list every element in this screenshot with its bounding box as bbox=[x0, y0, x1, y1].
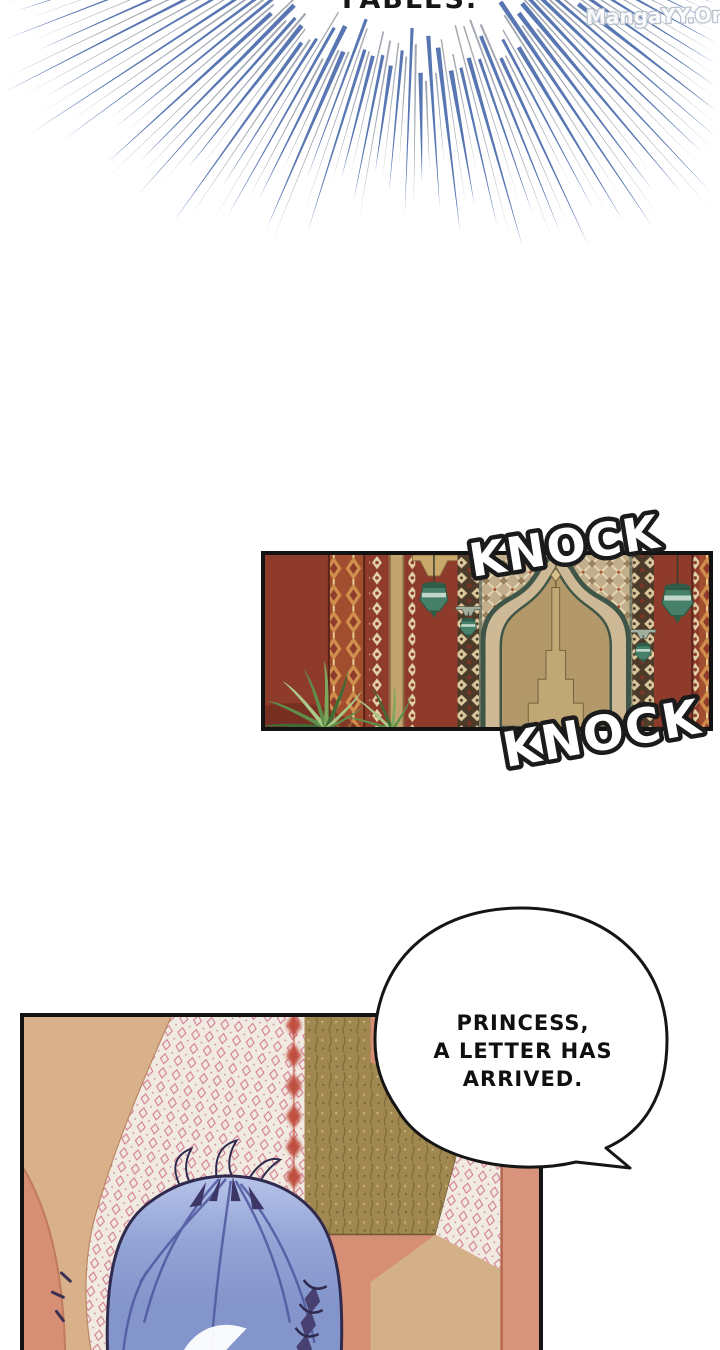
top-cutoff-text: FABLES. bbox=[342, 0, 478, 15]
watermark-text: MangaYY.Org bbox=[586, 3, 720, 30]
speech-line-1: PRINCESS, bbox=[457, 1011, 590, 1035]
speed-line bbox=[414, 44, 417, 207]
sfx-knock-top: KNOCK bbox=[450, 500, 680, 595]
speed-line bbox=[212, 12, 339, 222]
comic-page: FABLES. bbox=[0, 0, 720, 1350]
speed-line bbox=[4, 0, 267, 92]
speed-line bbox=[4, 0, 235, 3]
left-tapestry-bands bbox=[328, 555, 415, 727]
speed-line bbox=[436, 47, 460, 232]
speed-line bbox=[107, 0, 269, 121]
speed-line bbox=[517, 46, 623, 220]
speech-bubble: PRINCESS, A LETTER HAS ARRIVED. bbox=[368, 900, 680, 1185]
speed-line bbox=[107, 12, 272, 163]
sfx-knock-top-text: KNOCK bbox=[465, 504, 664, 588]
speed-line bbox=[501, 39, 593, 211]
speech-line-2: A LETTER HAS bbox=[433, 1039, 612, 1063]
speed-line bbox=[425, 81, 430, 171]
speed-lines-burst bbox=[0, 0, 720, 262]
speed-line bbox=[308, 49, 367, 231]
speed-line bbox=[35, 0, 247, 117]
speed-line bbox=[441, 39, 467, 208]
watermark: MangaYY.Org bbox=[584, 0, 720, 34]
sfx-knock-bottom-text: KNOCK bbox=[498, 689, 705, 779]
sfx-knock-bottom: KNOCK bbox=[482, 684, 720, 784]
speed-line bbox=[405, 28, 414, 213]
speech-line-3: ARRIVED. bbox=[463, 1067, 583, 1091]
speed-line bbox=[332, 51, 370, 183]
speed-line bbox=[499, 1, 654, 228]
speech-bubble-shape bbox=[375, 908, 667, 1168]
speed-line bbox=[141, 20, 287, 176]
speed-line bbox=[449, 70, 475, 204]
speed-line bbox=[418, 73, 423, 182]
